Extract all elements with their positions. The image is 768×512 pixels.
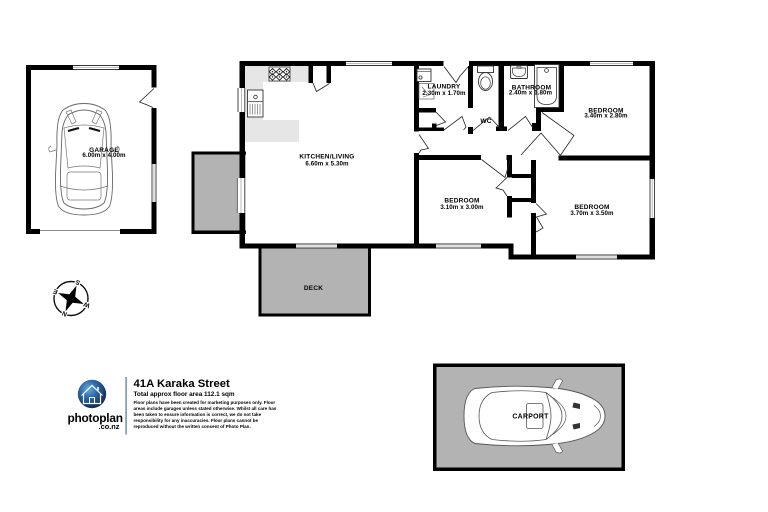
svg-text:been taken to ensure informati: been taken to ensure information is corr… bbox=[134, 412, 262, 417]
svg-text:.co.nz: .co.nz bbox=[99, 422, 120, 431]
svg-text:areas include garages unless s: areas include garages unless stated othe… bbox=[134, 406, 277, 411]
svg-text:CARPORT: CARPORT bbox=[512, 413, 549, 420]
svg-text:reproduced without the written: reproduced without the written consent o… bbox=[134, 424, 251, 429]
svg-text:WC: WC bbox=[480, 118, 491, 125]
svg-text:Floor plans have been created: Floor plans have been created for market… bbox=[134, 400, 276, 405]
svg-text:DECK: DECK bbox=[304, 285, 323, 292]
svg-text:2.40m x 1.80m: 2.40m x 1.80m bbox=[509, 89, 553, 96]
svg-text:2.30m x 1.70m: 2.30m x 1.70m bbox=[422, 90, 466, 97]
svg-text:3.70m x 3.50m: 3.70m x 3.50m bbox=[570, 210, 614, 217]
svg-text:Total approx floor area 112.1: Total approx floor area 112.1 sqm bbox=[134, 391, 235, 398]
svg-text:3.40m x 2.80m: 3.40m x 2.80m bbox=[584, 112, 628, 119]
svg-text:6.00m x 4.00m: 6.00m x 4.00m bbox=[82, 152, 126, 159]
svg-text:responsibility for any inaccur: responsibility for any inaccuracies. Flo… bbox=[134, 418, 259, 423]
svg-text:3.10m x 3.00m: 3.10m x 3.00m bbox=[440, 204, 484, 211]
svg-text:41A Karaka Street: 41A Karaka Street bbox=[134, 378, 231, 390]
svg-text:6.60m x 5.30m: 6.60m x 5.30m bbox=[305, 160, 349, 167]
